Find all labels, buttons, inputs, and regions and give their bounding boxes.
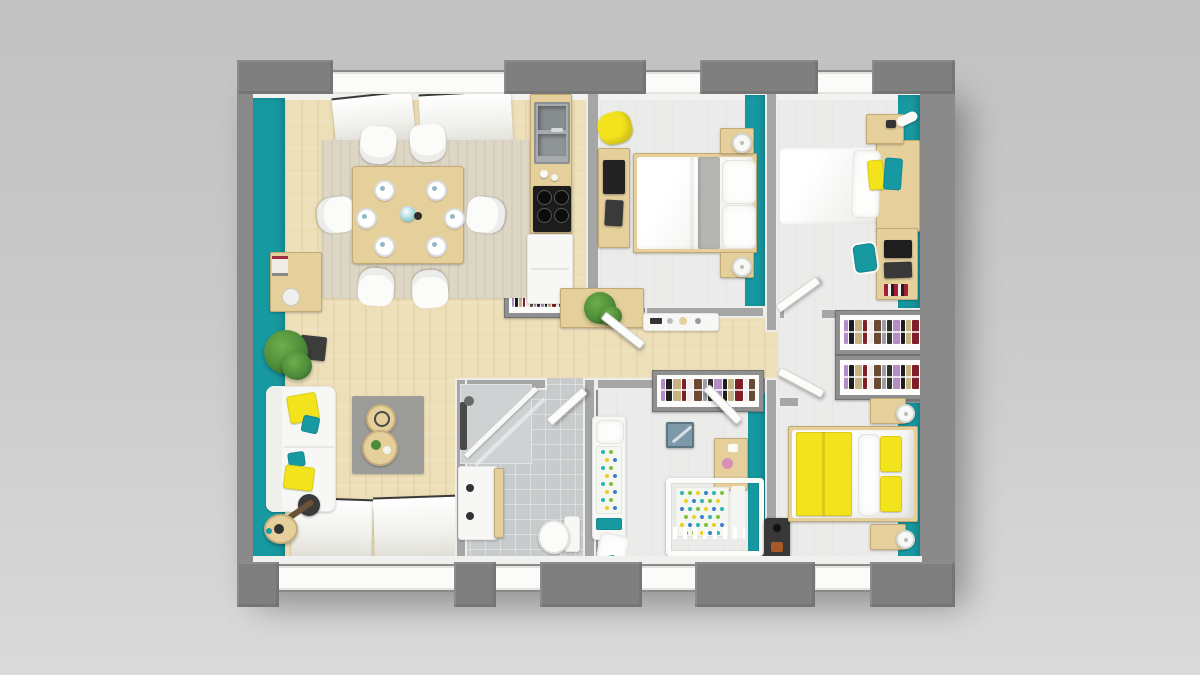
kids-north-wall [596,378,654,390]
duvet-fold [822,432,825,516]
burner [537,190,552,205]
bedroom3-north-wall-stub [778,396,800,408]
teal-desk-chair [852,243,878,274]
floor-plan-3d-render [0,0,1200,675]
dining-chair [408,123,447,164]
laptop [884,262,913,279]
monitor [884,240,912,258]
clothes-rack [844,365,930,389]
yellow-pillow [880,476,902,512]
yellow-pillow [880,436,902,472]
console-item [667,318,673,324]
bay-window [330,72,506,94]
sink-basin [538,134,566,156]
console-item [650,318,662,324]
toilet-bowl [538,520,570,554]
bedroom3-window [814,566,872,590]
toddler-bed-pillow [596,420,624,444]
sideboard [270,252,322,312]
toy-box [666,422,694,448]
gray-blanket [698,157,720,249]
shower-fixture [460,402,467,450]
yellow-cushion [283,464,316,491]
pillow [858,434,880,516]
wall-block [237,562,279,607]
bathroom-window [492,566,542,590]
outer-wall-west [237,62,253,582]
dining-table [352,166,464,264]
wall-block [872,60,955,94]
faucet [466,512,474,520]
wall-block [700,60,818,94]
bottle [414,212,422,220]
wall-block [540,562,642,607]
stove-flue [773,524,781,532]
tray [374,411,390,427]
table-lamp [896,404,915,423]
vanity-sink [458,466,498,540]
fridge-seam [531,268,569,270]
pillow [722,205,756,249]
sofa-backrest [266,386,282,512]
coffee-table [362,430,398,466]
stove-fire-window [771,542,783,552]
bedroom1-window [643,72,703,94]
cup [383,446,391,454]
lamp-accent [266,528,272,534]
toddler-bed-footer [596,518,622,530]
lamp-bulb [274,524,284,534]
book-row [884,284,908,296]
toy-box-lid-line [672,426,692,444]
mini-plant [371,440,381,450]
wall-block [504,60,646,94]
crib [666,478,764,556]
laptop [604,200,623,227]
bedroom2-desk [876,228,918,300]
burner [554,190,569,205]
console-item [679,317,687,325]
hall-console-shelf [643,313,719,331]
patio-door-pane [373,494,463,563]
patio-sliding-door [275,566,457,590]
teal-pillow [883,157,903,190]
shower-head [464,396,474,406]
bedroom1-desk [598,148,630,248]
wall-bedroom1-bedroom2 [765,92,778,332]
table-lamp [732,257,752,277]
white-toy [728,444,738,452]
potted-plant-leaves [282,352,312,380]
arc-lamp-shade [264,514,298,544]
wall-block [695,562,815,607]
dining-chair [315,195,357,235]
faucet [551,128,563,132]
decor-plate [282,288,300,306]
monitor [603,160,625,194]
teal-cushion [300,414,320,434]
cup [540,170,548,178]
table-lamp [732,133,752,153]
dining-chair [357,267,396,307]
toddler-bed-blanket [596,446,622,514]
wall-block [454,562,496,607]
clock [886,120,896,128]
faucet [466,484,474,492]
kitchen-sink [534,102,570,164]
pink-toy [722,458,733,469]
table-lamp [896,530,915,549]
bedroom2-window [814,72,874,94]
duvet-fold [690,157,694,249]
vanity-wood-side [494,468,504,538]
burner [537,208,552,223]
clothes-rack [844,320,930,344]
book-stack [272,256,288,276]
outer-wall-east [920,70,955,586]
console-item [695,318,701,324]
sink-basin [538,106,566,130]
wall-block [237,60,333,94]
crib-rails [673,527,745,539]
burner [554,208,569,223]
wall-block [870,562,955,607]
dining-chair [411,269,450,309]
cup [551,174,558,181]
cooktop [533,186,571,232]
kids-window [639,566,697,590]
pillow [722,160,756,204]
sofa-seam [284,446,334,448]
